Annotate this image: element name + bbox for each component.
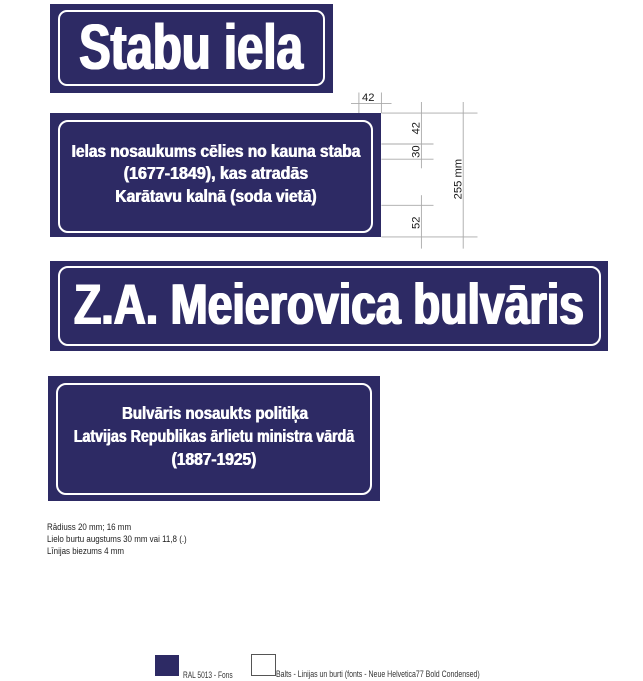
svg-text:52: 52 bbox=[411, 217, 423, 229]
svg-text:42: 42 bbox=[411, 122, 423, 134]
svg-text:255 mm: 255 mm bbox=[452, 159, 464, 199]
svg-text:30: 30 bbox=[411, 145, 423, 157]
svg-text:42: 42 bbox=[362, 92, 374, 104]
